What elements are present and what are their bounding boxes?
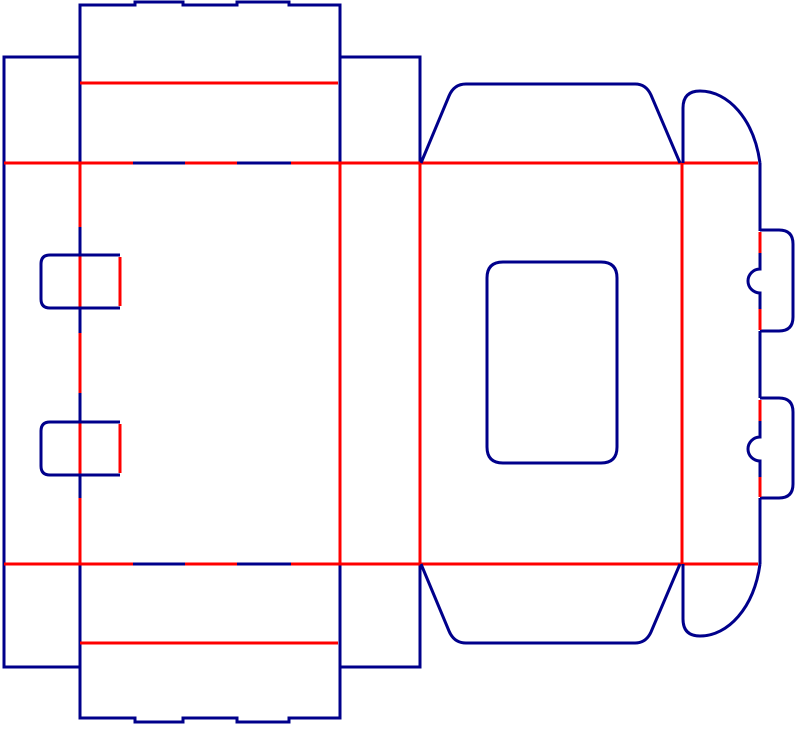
bottom-arc-flap [683,564,760,636]
top-arc-flap [683,91,760,163]
top-right-side-strip [341,57,420,163]
left-glue-strip-outline [4,57,80,667]
right-lock-tab-1-outline [760,230,793,331]
display-window-cutout [487,262,617,463]
right-lock-tab-2-outline [760,398,793,498]
right-lock-tab-2-bump [748,421,760,477]
dieline-drawing [0,0,800,729]
dieline-page [0,0,800,729]
right-lock-tab-1-bump [748,253,760,309]
bottom-right-side-strip [341,564,420,667]
bottom-dust-flap [421,564,680,643]
top-dust-flap [421,84,680,163]
